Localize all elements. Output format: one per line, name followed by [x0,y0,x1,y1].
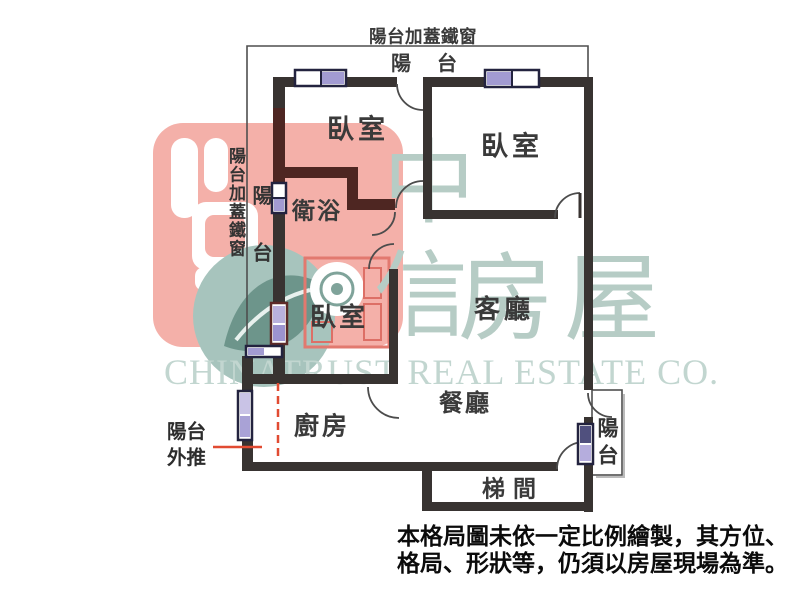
disclaimer-line2: 格局、形狀等，仍須以房屋現場為準。 [397,550,788,577]
room-label-stairwell: 梯間 [482,478,544,501]
door-arc-bedroom-right [555,193,580,218]
door-arc-right-balcony [588,393,612,417]
pushed-balcony-note-line1: 陽台 [167,420,206,446]
watermark-brand-char-4: 屋 [564,252,660,348]
room-label-living-room: 客廳 [474,296,534,322]
room-label-bedroom-top-left: 臥室 [327,117,389,144]
left-balcony-label: 陽台 [250,185,270,299]
room-label-dining-room: 餐廳 [439,392,491,416]
top-balcony-label: 陽台 [391,54,483,74]
window-symbol-bedroom-middle [271,303,287,344]
room-label-bedroom-middle: 臥室 [310,304,368,330]
window-symbol-kitchen [238,391,252,440]
room-label-kitchen: 廚房 [294,415,350,440]
logo-cutout-stub [195,267,237,291]
room-label-bathroom: 衛浴 [292,200,342,223]
right-balcony-label: 陽台 [596,417,617,471]
window-symbol-bathroom [272,183,286,213]
door-arc-entrance [557,442,584,469]
room-label-bedroom-top-right: 臥室 [481,134,543,161]
pushed-balcony-note: 陽台 外推 [167,420,206,471]
door-arc-top-balcony [397,84,423,110]
disclaimer-text: 本格局圖未依一定比例繪製，其方位、 格局、形狀等，仍須以房屋現場為準。 [397,523,788,576]
window-symbol-top-left [295,70,346,86]
disclaimer-line1: 本格局圖未依一定比例繪製，其方位、 [397,523,788,550]
window-symbol-top-right [485,70,539,87]
left-cover-title-vertical: 陽台加蓋鐵窗 [227,147,244,258]
pushed-balcony-note-line2: 外推 [167,446,206,472]
annotation-lines [213,383,278,460]
logo-cutout-bar [204,138,228,192]
floor-plan-page: 中 信 房 屋 CHINATRUST REAL ESTATE CO. [0,0,800,600]
watermark-company-name: CHINATRUST REAL ESTATE CO. [164,351,719,393]
logo-cutout-bar [171,138,198,218]
watermark-brand-char-2: 信 [374,249,468,343]
window-symbol-dining-balcony [578,424,593,464]
top-cover-title: 陽台加蓋鐵窗 [369,28,477,46]
watermark-brand-char-1: 中 [383,138,475,230]
